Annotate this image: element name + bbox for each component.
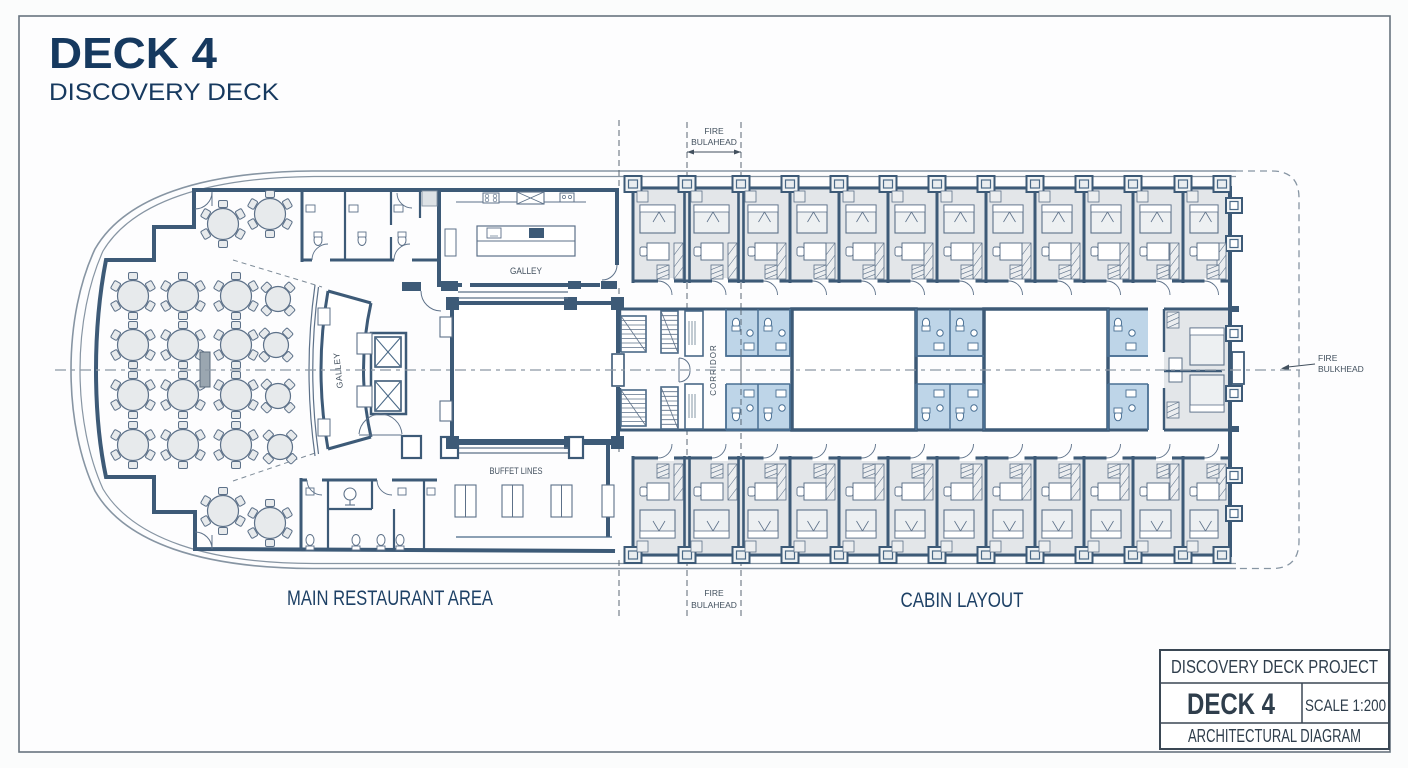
- svg-text:DECK 4: DECK 4: [49, 29, 218, 78]
- svg-text:BULKHEAD: BULKHEAD: [1318, 364, 1364, 374]
- svg-text:FIRE: FIRE: [704, 588, 724, 598]
- svg-text:GALLEY: GALLEY: [510, 266, 543, 277]
- svg-text:BULAHEAD: BULAHEAD: [691, 137, 737, 147]
- svg-text:FIRE: FIRE: [704, 126, 724, 136]
- svg-text:MAIN RESTAURANT AREA: MAIN RESTAURANT AREA: [287, 586, 494, 610]
- svg-text:BUFFET LINES: BUFFET LINES: [490, 466, 543, 477]
- svg-text:SCALE 1:200: SCALE 1:200: [1305, 696, 1386, 715]
- svg-text:CABIN LAYOUT: CABIN LAYOUT: [901, 588, 1024, 612]
- svg-text:BULAHEAD: BULAHEAD: [691, 600, 737, 610]
- svg-text:ARCHITECTURAL DIAGRAM: ARCHITECTURAL DIAGRAM: [1188, 726, 1361, 746]
- svg-text:DECK 4: DECK 4: [1187, 688, 1275, 721]
- svg-text:DISCOVERY DECK PROJECT: DISCOVERY DECK PROJECT: [1171, 657, 1378, 677]
- svg-text:DISCOVERY DECK: DISCOVERY DECK: [49, 79, 279, 106]
- svg-text:FIRE: FIRE: [1318, 353, 1338, 363]
